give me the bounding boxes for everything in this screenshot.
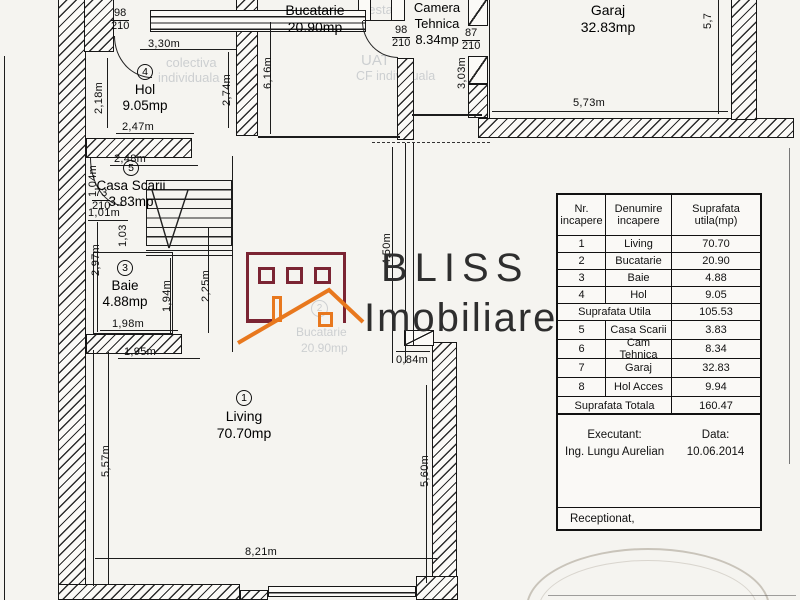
cell-nr: 7 xyxy=(558,359,605,377)
wall-garaj-right xyxy=(731,0,757,120)
room-name: Baie xyxy=(111,278,138,293)
dim-label: 3,30m xyxy=(148,38,180,50)
logo-window-icon xyxy=(286,267,303,284)
dim-label: 5,73m xyxy=(573,97,605,109)
room-name: Bucatarie xyxy=(285,2,344,18)
wall-ct-garaj-lower xyxy=(468,84,488,118)
dim-label: 6,16m xyxy=(262,57,274,89)
cell-area: 8.34 xyxy=(671,340,760,358)
dim-label: 1,94m xyxy=(161,280,173,312)
executant-name: Ing. Lungu Aurelian xyxy=(558,444,671,461)
ct-bottom-line xyxy=(412,114,482,116)
dim-label: 1,98m xyxy=(112,318,144,330)
stamp-baseline xyxy=(548,595,796,596)
table-row: 3 Baie 4.88 xyxy=(558,269,760,286)
floor-plan-page: Atestat UAT CF individuala colectiva ind… xyxy=(0,0,800,600)
room-area: 32.83mp xyxy=(581,19,635,35)
dim-label: 2,25m xyxy=(200,270,212,302)
dim-line xyxy=(116,133,194,134)
wall-living-right xyxy=(432,342,457,594)
cell-name: Living xyxy=(605,236,671,252)
table-header-cell: Denumire incapere xyxy=(605,195,671,235)
room-label-bucatarie: Bucatarie 20.90mp xyxy=(276,2,354,35)
room-name: Tehnica xyxy=(415,16,460,31)
room-number: 1 xyxy=(236,390,252,406)
subtotal-label: Suprafata Utila xyxy=(558,304,671,320)
cell-nr: 8 xyxy=(558,378,605,396)
table-row: 6 Cam Tehnica 8.34 xyxy=(558,339,760,358)
door-jamb xyxy=(468,0,488,26)
dim-line xyxy=(118,358,200,359)
room-number: 5 xyxy=(123,160,139,176)
dim-label: 2,18m xyxy=(93,82,105,114)
dim-label: 5,60m xyxy=(419,455,431,487)
dim-label: 2,47m xyxy=(122,121,154,133)
cell-nr: 4 xyxy=(558,287,605,303)
signature-box: Executant: Ing. Lungu Aurelian Data: 10.… xyxy=(556,413,762,531)
table-row: 8 Hol Acces 9.94 xyxy=(558,377,760,396)
executant-row: Executant: Ing. Lungu Aurelian Data: 10.… xyxy=(558,415,760,507)
dashed-line xyxy=(372,142,490,143)
cell-nr: 6 xyxy=(558,340,605,358)
wall-bottom-mid xyxy=(240,590,268,600)
cell-area: 9.94 xyxy=(671,378,760,396)
dim-line xyxy=(95,558,437,559)
executant-label: Executant: xyxy=(558,427,671,444)
dim-label: 0,84m xyxy=(396,354,428,366)
room-label-baie: 3 Baie 4.88mp xyxy=(92,260,158,309)
stamp-text-fragment: CF individuala xyxy=(356,69,435,83)
cell-name: Bucatarie xyxy=(605,253,671,269)
wall-bottom-left xyxy=(58,584,240,600)
room-number: 4 xyxy=(137,64,153,80)
dim-line xyxy=(100,330,178,331)
room-label-garaj: Garaj 32.83mp xyxy=(568,2,648,35)
page-right-edge-line xyxy=(789,148,790,464)
dim-line xyxy=(718,0,719,114)
cell-area: 9.05 xyxy=(671,287,760,303)
room-area: 70.70mp xyxy=(217,425,271,441)
room-area: 9.05mp xyxy=(122,98,167,113)
cell-nr: 3 xyxy=(558,270,605,286)
room-name: Camera xyxy=(414,0,460,15)
room-name: Garaj xyxy=(591,2,625,18)
logo-roof-icon xyxy=(232,285,372,355)
dim-label: 5,7 xyxy=(702,13,714,29)
table-row: 1 Living 70.70 xyxy=(558,235,760,252)
cell-nr: 2 xyxy=(558,253,605,269)
logo-brand-subname: Imobiliare xyxy=(364,296,557,341)
wall-bucatarie-ct xyxy=(397,58,414,140)
cell-area: 3.83 xyxy=(671,321,760,339)
wall-bottom-corner xyxy=(416,576,458,600)
room-label-hol: 4 Hol 9.05mp xyxy=(112,64,178,113)
cell-area: 4.88 xyxy=(671,270,760,286)
executant-block: Executant: Ing. Lungu Aurelian xyxy=(558,427,671,507)
room-name: Casa Scarii xyxy=(96,178,165,193)
dim-label: 8,21m xyxy=(245,546,277,558)
window-bottom xyxy=(268,586,416,597)
cell-area: 20.90 xyxy=(671,253,760,269)
cell-nr: 5 xyxy=(558,321,605,339)
date-value: 10.06.2014 xyxy=(671,444,760,461)
table-subtotal-row: Suprafata Utila 105.53 xyxy=(558,303,760,320)
garaj-left-line xyxy=(489,0,490,118)
wall-left-exterior xyxy=(58,0,86,600)
room-label-casa-scarii: 5 Casa Scarii 3.83mp xyxy=(84,160,178,209)
logo-window-icon xyxy=(314,267,331,284)
cell-area: 32.83 xyxy=(671,359,760,377)
door-height: 210 xyxy=(111,20,129,32)
logo-window-icon xyxy=(258,267,275,284)
dim-label: 2,74m xyxy=(221,74,233,106)
room-name: Hol xyxy=(135,82,155,97)
room-area: 20.90mp xyxy=(288,19,342,35)
subtotal-value: 105.53 xyxy=(671,304,760,320)
door-leaf-bucatarie xyxy=(363,20,394,21)
logo-chimney-icon xyxy=(272,296,282,322)
table-row: 7 Garaj 32.83 xyxy=(558,358,760,377)
room-label-camera-tehnica: Camera Tehnica 8.34mp xyxy=(408,0,466,47)
dim-label: 1,03 xyxy=(117,224,129,247)
dim-line xyxy=(107,58,108,128)
dim-label: 3,03m xyxy=(456,57,468,89)
cell-name: Garaj xyxy=(605,359,671,377)
cell-area: 70.70 xyxy=(671,236,760,252)
date-block: Data: 10.06.2014 xyxy=(671,427,760,507)
wall-garaj-bottom xyxy=(478,118,794,138)
table-row: 2 Bucatarie 20.90 xyxy=(558,252,760,269)
wall-top-left-stub xyxy=(84,0,114,52)
room-number: 3 xyxy=(117,260,133,276)
table-row: 4 Hol 9.05 xyxy=(558,286,760,303)
dim-label: 1,95m xyxy=(124,346,156,358)
living-left-line xyxy=(93,350,94,586)
table-header-cell: Nr. incapere xyxy=(558,195,605,235)
cell-name: Baie xyxy=(605,270,671,286)
door-jamb xyxy=(391,0,405,21)
room-area: 8.34mp xyxy=(415,32,458,47)
room-area: 4.88mp xyxy=(102,294,147,309)
cell-name: Hol Acces xyxy=(605,378,671,396)
room-name: Living xyxy=(226,408,263,424)
table-header-cell: Suprafata utila(mp) xyxy=(671,195,760,235)
logo-roof-window-icon xyxy=(318,312,333,327)
cell-name: Cam Tehnica xyxy=(605,340,671,358)
door-size-label: 98 210 xyxy=(111,8,129,32)
cell-nr: 1 xyxy=(558,236,605,252)
areas-table: Nr. incapere Denumire incapere Suprafata… xyxy=(556,193,762,417)
dim-line xyxy=(396,351,430,352)
room-label-living: 1 Living 70.70mp xyxy=(206,390,282,441)
cell-name: Hol xyxy=(605,287,671,303)
door-jamb xyxy=(468,56,488,84)
logo-brand-name: BLISS xyxy=(381,246,529,291)
page-left-edge-line xyxy=(4,56,5,600)
table-header-row: Nr. incapere Denumire incapere Suprafata… xyxy=(558,195,760,235)
dim-line xyxy=(88,220,128,221)
room-area: 3.83mp xyxy=(108,194,153,209)
dim-line xyxy=(492,111,728,112)
receptionat-row: Receptionat, xyxy=(558,507,760,531)
stair-landing-line xyxy=(146,255,232,256)
date-label: Data: xyxy=(671,427,760,444)
dim-label: 5,57m xyxy=(100,445,112,477)
bucatarie-bottom-line xyxy=(258,136,400,138)
